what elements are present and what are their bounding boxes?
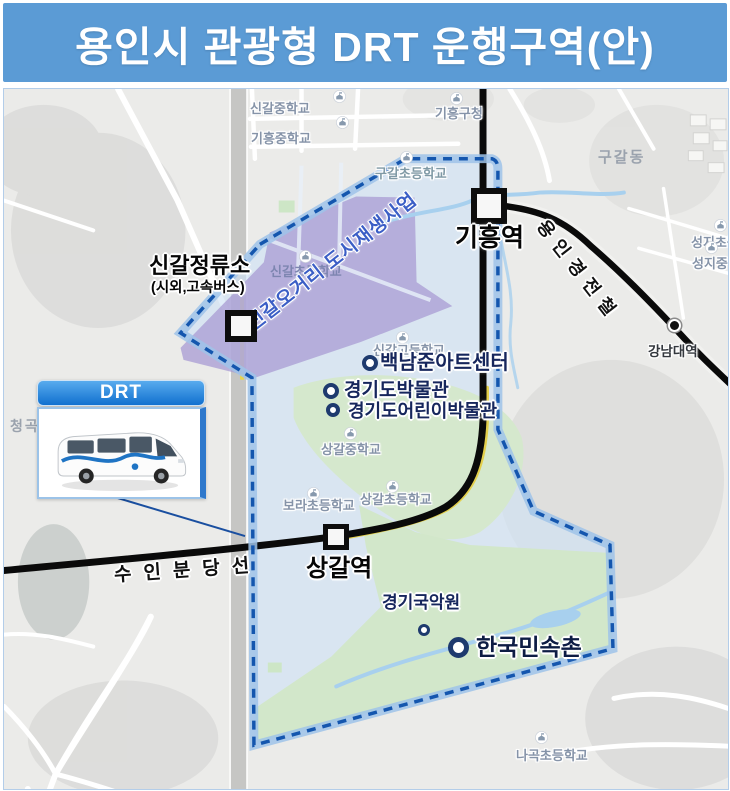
drt-van-illustration (45, 414, 195, 493)
title-bar: 용인시 관광형 DRT 운행구역(안) (3, 3, 727, 82)
poi-label-gugak-center: 경기국악원 (382, 594, 460, 612)
poi-label-gyeonggi-museum: 경기도박물관 (344, 381, 449, 401)
area-label-cheonggok: 청곡 (10, 419, 40, 434)
poi-label-folk-village: 한국민속촌 (476, 635, 582, 659)
poi-label-children-museum: 경기도어린이박물관 (348, 402, 497, 421)
label-singal-terminal: 신갈정류소 (149, 254, 250, 277)
school-icon (400, 151, 413, 164)
place-label-gugal-elementary: 구갈초등학교 (375, 167, 447, 181)
drt-callout-title: DRT (100, 382, 142, 404)
station-label-gangnam-univ: 강남대역 (648, 345, 698, 359)
school-icon (535, 731, 548, 744)
school-icon (336, 116, 349, 129)
place-label-seongji-middle-school: 성지중학교 (692, 257, 729, 271)
place-label-nagok-elementary: 나곡초등학교 (516, 749, 588, 763)
singal-terminal-square-marker (225, 310, 257, 342)
place-label-bora-elementary: 보라초등학교 (283, 499, 355, 513)
place-label-sanggal-middle-school: 상갈중학교 (321, 443, 381, 457)
station-label-sanggal: 상갈역 (306, 556, 372, 581)
expressway-band (230, 89, 247, 789)
place-label-sanggal-elementary: 상갈초등학교 (360, 493, 432, 507)
place-label-singal-middle-school: 신갈중학교 (250, 102, 310, 116)
area-label-gugal-dong: 구갈동 (598, 150, 645, 166)
school-icon (299, 250, 312, 263)
poi-label-paik-art-center: 백남준아트센터 (380, 353, 509, 374)
poi-ring-gyeonggi-museum (323, 383, 339, 399)
map-canvas: 신갈중학교 기흥중학교 기흥구청 구갈초등학교 구갈동 성지초등학교 성지중학교… (3, 88, 729, 790)
gangnam-univ-station-dot (668, 319, 681, 332)
page: { "title": "용인시 관광형 DRT 운행구역(안)", "callo… (0, 0, 730, 791)
drt-callout-header: DRT (37, 380, 205, 406)
station-label-giheung: 기흥역 (455, 225, 524, 251)
sanggal-station-square-marker (323, 524, 349, 550)
label-singal-terminal-sub: (시외,고속버스) (151, 281, 245, 296)
poi-ring-paik-art-center (362, 355, 378, 371)
callout-connector-line (115, 497, 245, 536)
school-icon (705, 241, 718, 254)
school-icon (714, 219, 727, 232)
school-icon (344, 427, 357, 440)
govt-office-icon (450, 92, 463, 105)
poi-ring-folk-village (448, 637, 469, 658)
place-label-giheung-district-office: 기흥구청 (435, 107, 483, 121)
drt-vehicle-photo (37, 407, 206, 499)
school-icon (333, 90, 346, 103)
page-title: 용인시 관광형 DRT 운행구역(안) (75, 13, 655, 73)
poi-ring-gugak-center (418, 624, 430, 636)
place-label-giheung-middle-school: 기흥중학교 (251, 132, 311, 146)
poi-ring-children-museum (326, 403, 340, 417)
giheung-station-square-marker (471, 188, 507, 224)
